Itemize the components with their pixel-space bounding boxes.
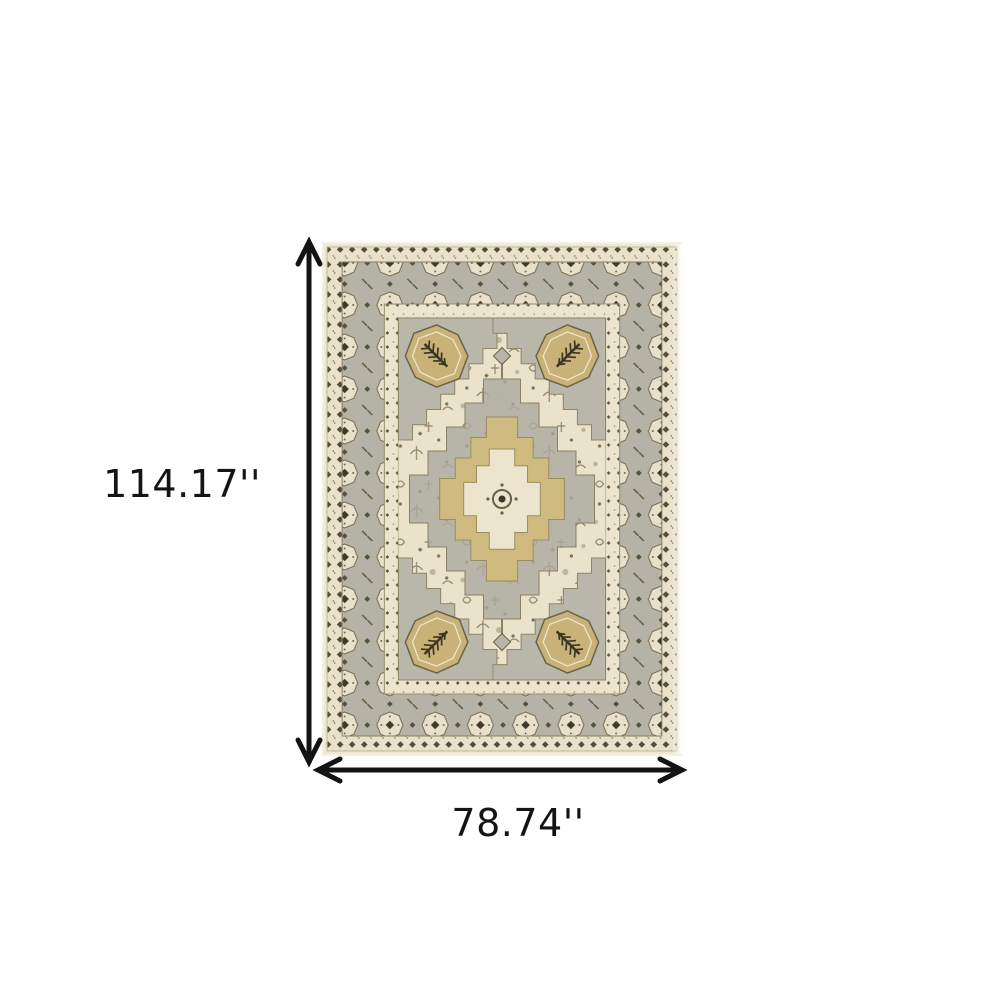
rug-image <box>322 242 682 756</box>
height-dimension-label: 114.17'' <box>57 462 307 506</box>
product-dimension-diagram: 114.17'' 78.74'' <box>0 0 1000 1000</box>
width-dimension-label: 78.74'' <box>393 801 643 845</box>
rug-fringe-fade <box>672 244 682 754</box>
width-dimension-arrow-icon <box>310 752 690 788</box>
